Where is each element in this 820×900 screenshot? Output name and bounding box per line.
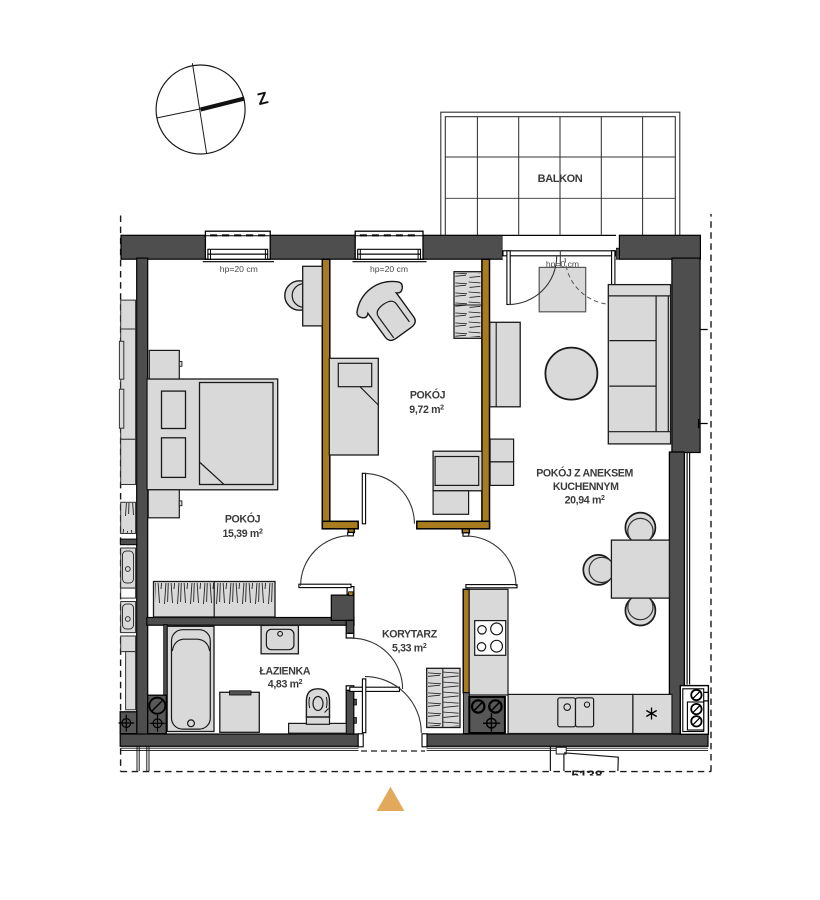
svg-text:20,94 m2: 20,94 m2 xyxy=(565,495,605,507)
svg-text:KORYTARZ: KORYTARZ xyxy=(382,629,438,641)
svg-text:5138: 5138 xyxy=(571,767,602,783)
svg-text:POKÓJ: POKÓJ xyxy=(410,388,446,401)
svg-text:15,39 m2: 15,39 m2 xyxy=(223,528,263,540)
svg-text:POKÓJ Z ANEKSEM: POKÓJ Z ANEKSEM xyxy=(536,466,633,479)
svg-text:hp=20 cm: hp=20 cm xyxy=(370,264,408,274)
svg-text:KUCHENNYM: KUCHENNYM xyxy=(553,481,619,493)
svg-text:9,72 m2: 9,72 m2 xyxy=(409,404,444,416)
svg-text:ŁAZIENKA: ŁAZIENKA xyxy=(259,665,310,677)
svg-text:4,83 m2: 4,83 m2 xyxy=(268,679,303,691)
svg-text:hp=20 cm: hp=20 cm xyxy=(220,264,258,274)
svg-text:5,33 m2: 5,33 m2 xyxy=(392,643,427,655)
svg-text:POKÓJ: POKÓJ xyxy=(225,513,261,526)
svg-text:Z: Z xyxy=(255,88,270,109)
svg-text:BALKON: BALKON xyxy=(538,173,583,185)
